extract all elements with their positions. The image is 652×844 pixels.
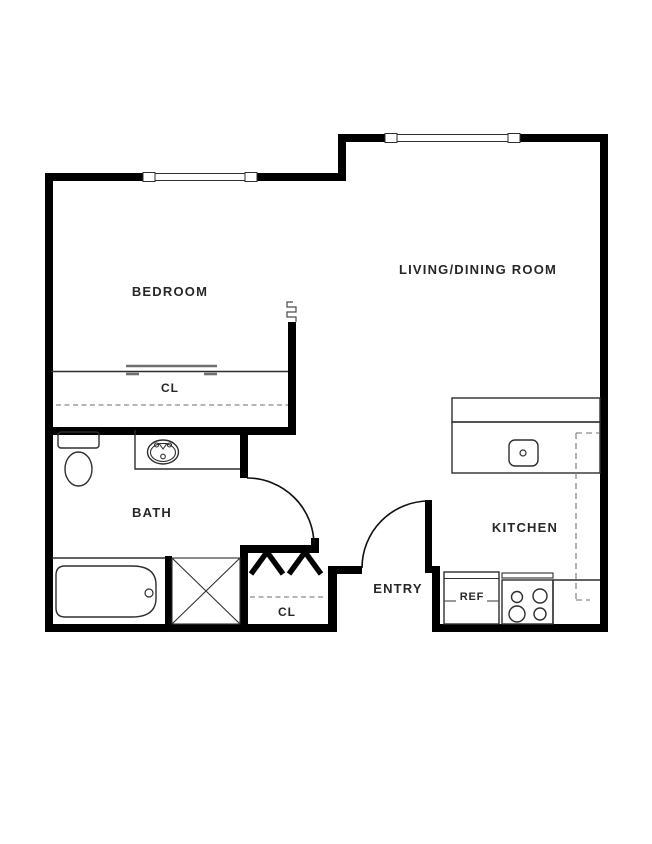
burner <box>509 606 525 622</box>
faucet-spout <box>159 444 167 450</box>
bedroom-label: BEDROOM <box>132 284 208 299</box>
bath-fixtures <box>52 430 240 624</box>
wall-bottom-left <box>45 624 337 632</box>
kitchen-counter-upper <box>452 398 600 422</box>
toilet-bowl <box>65 452 92 486</box>
floor-plan: BEDROOM LIVING/DINING ROOM CL BATH CL EN… <box>0 0 652 844</box>
bathroom-sink-icon <box>148 440 179 464</box>
upper-cabinet-dashed-icon <box>576 433 599 600</box>
window-cap <box>143 173 155 182</box>
entry-closet <box>250 552 325 597</box>
wall-bottom-right <box>433 624 608 632</box>
range-counter-strip <box>502 573 553 578</box>
tub-drain <box>145 589 153 597</box>
wall-tub-shower-divider <box>165 556 172 625</box>
wall-right <box>600 134 608 632</box>
sink-drain <box>161 454 166 459</box>
wall-entry-closet-left <box>240 545 248 632</box>
kitchen-label: KITCHEN <box>492 520 558 535</box>
tub-basin <box>56 566 156 617</box>
kitchen-sink-basin <box>509 440 538 466</box>
burner <box>534 608 546 620</box>
kitchen-sink-drain <box>520 450 526 456</box>
floor-plan-page: BEDROOM LIVING/DINING ROOM CL BATH CL EN… <box>0 0 652 844</box>
room-labels: BEDROOM LIVING/DINING ROOM CL BATH CL EN… <box>132 262 558 619</box>
entry-door-leaf <box>425 500 432 568</box>
wall-entry-stub <box>328 566 362 574</box>
burner <box>533 589 547 603</box>
wall-entry-closet-right <box>328 568 337 632</box>
living-window <box>385 134 520 143</box>
wall-bedroom-living-divider <box>288 322 296 427</box>
entry-closet-label: CL <box>278 605 296 619</box>
bath-label: BATH <box>132 505 172 520</box>
bathroom-vanity <box>135 430 240 469</box>
kitchen-sink-icon <box>509 440 538 466</box>
closet-rod-bracket-icon <box>251 552 283 574</box>
refrigerator-label: REF <box>460 591 484 603</box>
wall-break-icon <box>287 302 296 322</box>
window-band <box>143 174 257 181</box>
window-cap <box>508 134 520 143</box>
bedroom-closet-label: CL <box>161 381 179 395</box>
wall-entry-closet-cap <box>311 538 319 548</box>
closet-rod-bracket-icon <box>289 552 321 574</box>
window-band <box>385 135 520 142</box>
burner <box>512 592 523 603</box>
window-cap <box>245 173 257 182</box>
wall-kitchen-west <box>432 566 440 632</box>
bathtub-icon <box>52 558 165 617</box>
entry-label: ENTRY <box>373 581 423 596</box>
shower-icon <box>172 558 240 624</box>
wall-bath-top <box>45 427 296 435</box>
bath-door-swing-arc-icon <box>247 478 314 545</box>
window-cap <box>385 134 397 143</box>
living-dining-label: LIVING/DINING ROOM <box>399 262 557 277</box>
range-burners-icon <box>502 573 553 624</box>
wall-bath-right <box>240 427 248 478</box>
entry-door-swing-arc-icon <box>362 501 429 568</box>
bedroom-window <box>143 173 257 182</box>
wall-left <box>45 173 53 632</box>
toilet-icon <box>58 432 99 486</box>
